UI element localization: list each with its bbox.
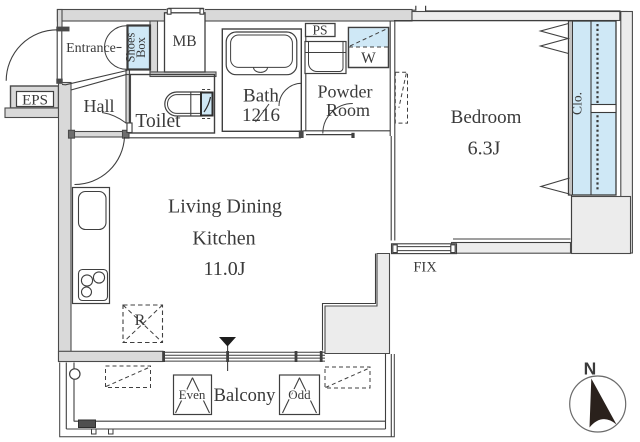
svg-text:Clo.: Clo. <box>570 92 585 115</box>
svg-text:Bedroom: Bedroom <box>451 107 522 128</box>
svg-text:11.0J: 11.0J <box>203 258 245 280</box>
svg-text:1216: 1216 <box>242 105 280 126</box>
svg-text:Powder: Powder <box>318 82 373 102</box>
svg-text:Hall: Hall <box>84 96 115 116</box>
svg-text:PS: PS <box>312 23 327 38</box>
svg-text:FIX: FIX <box>413 260 437 276</box>
svg-text:Room: Room <box>326 100 370 120</box>
svg-text:R: R <box>135 312 146 329</box>
svg-text:Even: Even <box>179 387 206 402</box>
svg-text:Balcony: Balcony <box>214 386 276 406</box>
svg-text:MB: MB <box>172 33 196 50</box>
svg-text:W: W <box>361 50 376 67</box>
svg-text:N: N <box>584 359 597 379</box>
svg-text:6.3J: 6.3J <box>468 138 501 160</box>
svg-text:Box: Box <box>134 36 148 58</box>
svg-text:Odd: Odd <box>288 387 311 402</box>
svg-text:Kitchen: Kitchen <box>192 228 255 250</box>
svg-text:Living Dining: Living Dining <box>168 196 282 218</box>
svg-text:Bath: Bath <box>243 86 279 107</box>
svg-text:EPS: EPS <box>22 93 48 109</box>
svg-text:Entrance: Entrance <box>66 41 116 56</box>
